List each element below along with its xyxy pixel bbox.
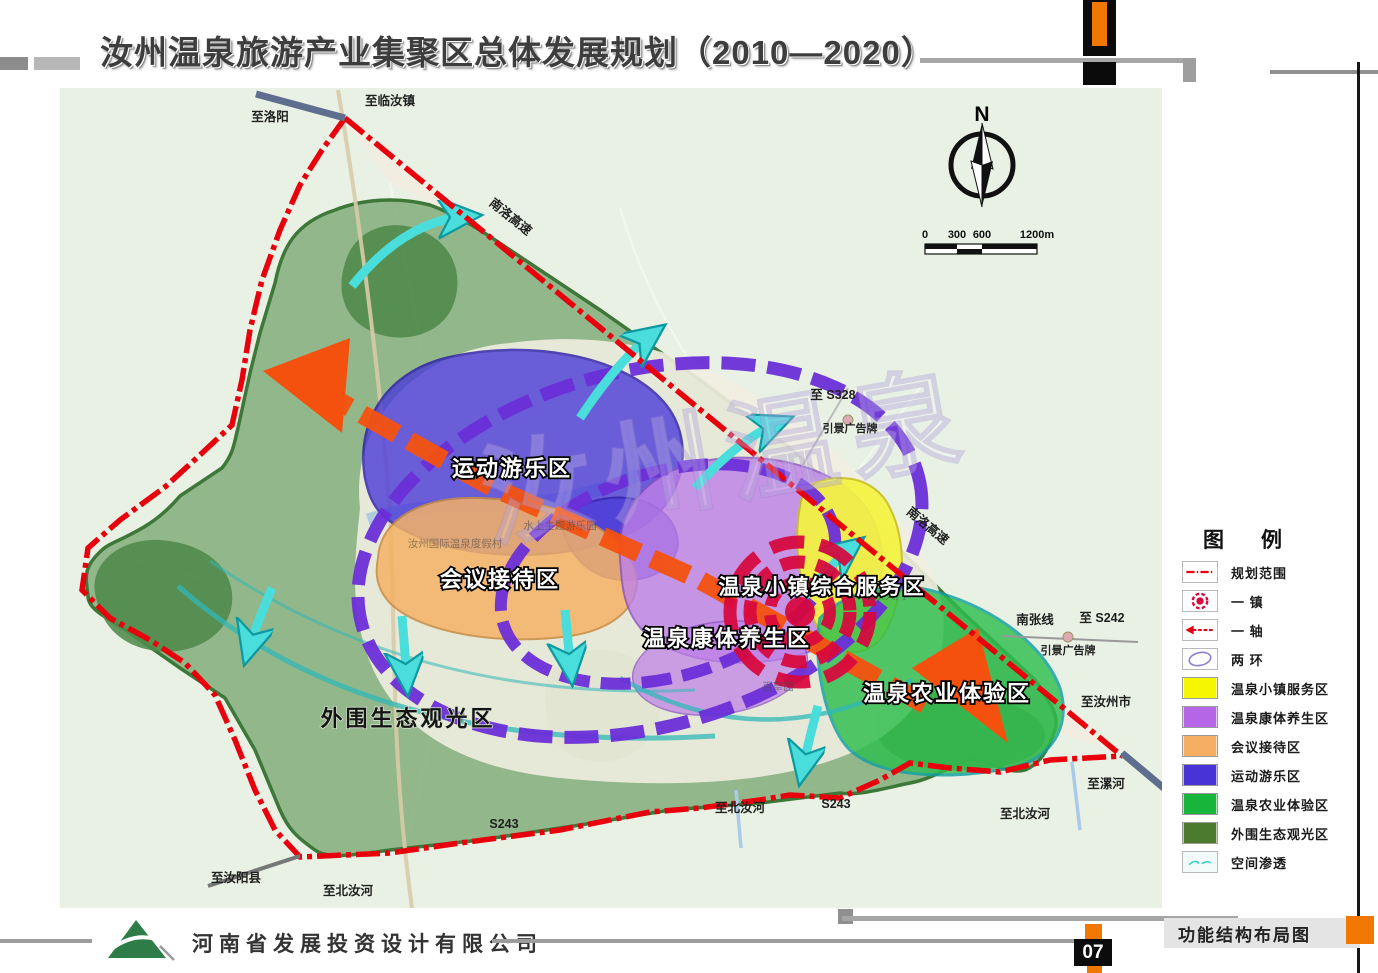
- pagenum-deco-top: [1085, 924, 1102, 939]
- legend-item-rings: 两 环: [1182, 648, 1378, 670]
- poi-label: 汝州国际温泉度假村: [408, 537, 503, 550]
- zone-label: 会议接待区: [440, 567, 560, 592]
- boundary-line-icon: [1182, 561, 1218, 583]
- road-label: 至北汝河: [715, 800, 766, 815]
- scale-tick: 600: [973, 229, 991, 241]
- color-swatch: [1182, 793, 1218, 815]
- header-deco-orange-bar: [1092, 2, 1107, 46]
- road-label: S243: [489, 817, 518, 831]
- legend-title: 图 例: [1203, 524, 1290, 554]
- color-swatch: [1182, 677, 1218, 699]
- company-logo: [100, 916, 182, 962]
- legend-item-town-service: 温泉小镇服务区: [1182, 677, 1378, 699]
- page-number: 07: [1074, 939, 1112, 966]
- footer-rule-left: [0, 939, 92, 943]
- penetration-icon: [1182, 851, 1218, 873]
- map-canvas: 汝州温泉 汝州国际温泉度假村 水上主题游乐园 温泉大门 百草园 至洛阳 至临汝镇…: [60, 88, 1162, 908]
- sheet-caption-bar: 功能结构布局图: [1164, 918, 1360, 948]
- color-swatch: [1182, 706, 1218, 728]
- scale-tick: 1200m: [1020, 229, 1054, 241]
- legend-label: 温泉康体养生区: [1231, 708, 1329, 727]
- poi-label: 百草园: [762, 681, 794, 693]
- color-swatch: [1182, 764, 1218, 786]
- color-swatch: [1182, 735, 1218, 757]
- poi-label: 水上主题游乐园: [523, 519, 597, 532]
- legend-label: 一 镇: [1231, 592, 1264, 611]
- sheet-caption: 功能结构布局图: [1178, 921, 1311, 946]
- zone-label: 温泉农业体验区: [863, 681, 1031, 706]
- header-deco-gray-square: [1183, 58, 1196, 82]
- footer-rule-mid: [492, 939, 1074, 943]
- road-label: 至临汝镇: [365, 93, 416, 108]
- zone-label: 温泉小镇综合服务区: [719, 575, 926, 599]
- header-deco-bar-light: [34, 57, 80, 70]
- legend-label: 规划范围: [1231, 563, 1287, 582]
- pagenum-deco-bottom: [1087, 966, 1102, 973]
- color-swatch: [1182, 822, 1218, 844]
- billboard-marker: [1063, 632, 1073, 642]
- road-label: 至汝州市: [1081, 694, 1132, 709]
- legend-item-eco: 外围生态观光区: [1182, 822, 1378, 844]
- zone-label: 外围生态观光区: [320, 706, 495, 731]
- road-label: 至汝阳县: [211, 870, 262, 885]
- header-rule-right: [1270, 70, 1378, 74]
- legend-item-boundary: 规划范围: [1182, 561, 1378, 583]
- legend-item-axis: 一 轴: [1182, 619, 1378, 641]
- legend-item-penetration: 空间渗透: [1182, 851, 1378, 873]
- road-label: 至洛阳: [251, 109, 289, 124]
- road-label: 引景广告牌: [823, 421, 878, 435]
- legend-item-wellness: 温泉康体养生区: [1182, 706, 1378, 728]
- legend-label: 两 环: [1231, 650, 1264, 669]
- legend-label: 会议接待区: [1231, 737, 1301, 756]
- legend-label: 外围生态观光区: [1231, 824, 1329, 843]
- legend-item-agriculture: 温泉农业体验区: [1182, 793, 1378, 815]
- road-label: 引景广告牌: [1041, 643, 1096, 657]
- legend-label: 一 轴: [1231, 621, 1264, 640]
- legend-label: 温泉农业体验区: [1231, 795, 1329, 814]
- road-label: 至北汝河: [323, 883, 374, 898]
- legend-label: 温泉小镇服务区: [1231, 679, 1329, 698]
- legend-item-conference: 会议接待区: [1182, 735, 1378, 757]
- road-label: 至 S242: [1079, 611, 1124, 625]
- town-symbol-icon: [1182, 590, 1218, 612]
- road-label: 至 S328: [810, 388, 855, 402]
- axis-arrow-icon: [1182, 619, 1218, 641]
- header-deco-bar-dark: [0, 57, 28, 70]
- zone-label: 温泉康体养生区: [643, 626, 811, 651]
- compass-north-label: N: [974, 103, 989, 126]
- page-title: 汝州温泉旅游产业集聚区总体发展规划（2010—2020）: [100, 26, 935, 74]
- legend-label: 运动游乐区: [1231, 766, 1301, 785]
- ring-icon: [1182, 648, 1218, 670]
- road-label: S243: [821, 797, 850, 811]
- header-deco-black-square: [1083, 62, 1116, 85]
- scale-tick: 300: [948, 229, 966, 241]
- scale-tick: 0: [922, 229, 928, 241]
- legend-label: 空间渗透: [1231, 853, 1287, 872]
- company-name: 河南省发展投资设计有限公司: [192, 928, 543, 958]
- header-rule: [920, 58, 1192, 63]
- plan-sheet: 汝州温泉旅游产业集聚区总体发展规划（2010—2020）: [0, 0, 1378, 973]
- legend-panel: 规划范围 一 镇 一 轴 两 环 温泉小镇服务区: [1182, 561, 1378, 880]
- caption-deco-orange-square: [1346, 916, 1374, 944]
- legend-item-sports: 运动游乐区: [1182, 764, 1378, 786]
- road-label: 南张线: [1016, 612, 1054, 627]
- zone-label: 运动游乐区: [452, 456, 572, 481]
- legend-item-town: 一 镇: [1182, 590, 1378, 612]
- road-label: 至北汝河: [1000, 806, 1051, 821]
- road-label: 至漯河: [1087, 776, 1125, 791]
